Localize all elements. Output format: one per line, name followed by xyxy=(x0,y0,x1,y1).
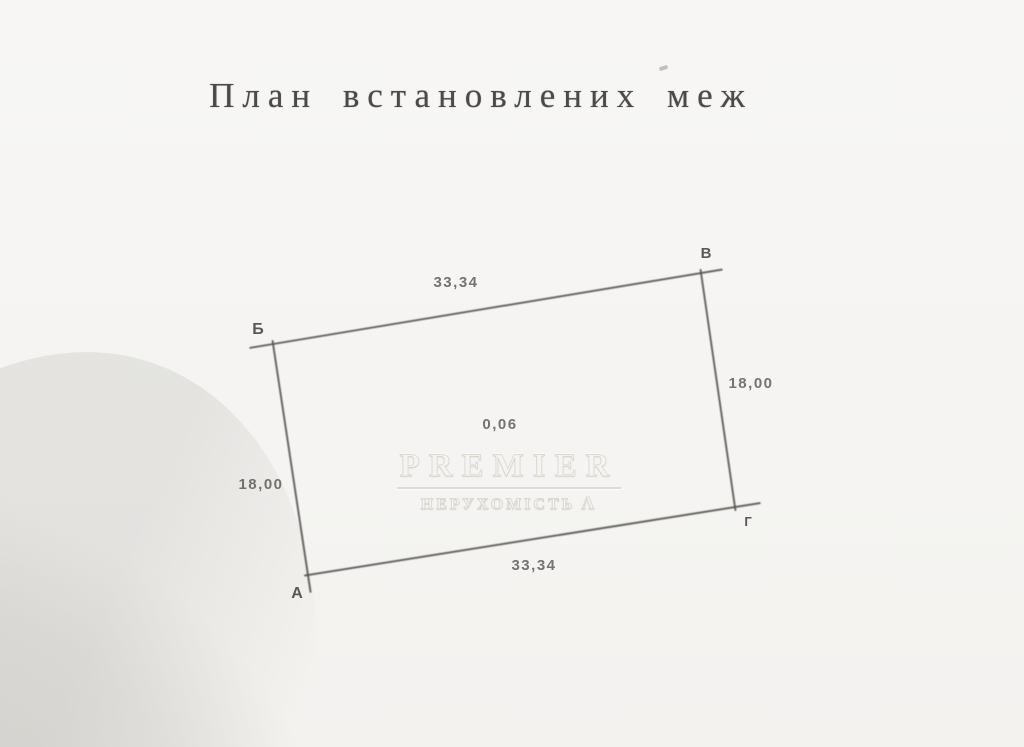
length-label-side-G-A: 33,34 xyxy=(511,557,556,574)
corner-label-A: А xyxy=(291,585,303,602)
parcel-area-label: 0,06 xyxy=(482,416,517,433)
length-label-side-A-B: 18,00 xyxy=(238,476,283,493)
corner-label-G: Г xyxy=(744,514,752,529)
length-label-side-V-G: 18,00 xyxy=(728,375,773,392)
boundary-line-side-A-B xyxy=(273,341,311,592)
boundary-plan-drawing: 18,0033,3418,0033,34АБВГ0,06 xyxy=(0,0,1024,747)
length-label-side-B-V: 33,34 xyxy=(433,274,478,291)
boundary-line-side-B-V xyxy=(250,270,721,348)
parcel-labels: 18,0033,3418,0033,34АБВГ0,06 xyxy=(238,245,773,602)
scanned-plan-page: План встановлених меж 18,0033,3418,0033,… xyxy=(0,0,1024,747)
corner-label-V: В xyxy=(701,245,712,262)
corner-label-B: Б xyxy=(252,321,264,338)
